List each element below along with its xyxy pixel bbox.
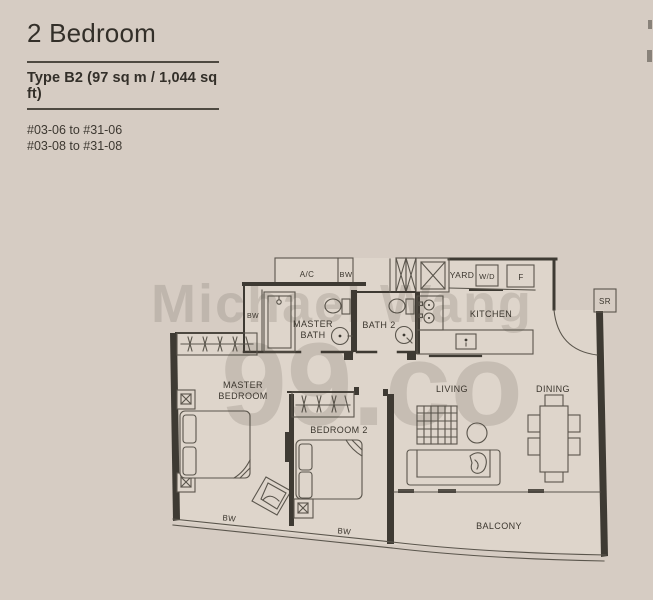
sofa: [407, 450, 500, 485]
room-label-dining: DINING: [536, 384, 570, 394]
room-label-bw-bay-1: BW: [222, 513, 237, 523]
floor-plan: A/CBWYARDW/DFSRKITCHENBATH 2MASTERBATHBW…: [0, 0, 653, 600]
room-label-sr: SR: [599, 297, 611, 306]
edge-artifact: [647, 20, 652, 62]
room-label-balcony: BALCONY: [476, 521, 522, 531]
watermark-line2: 99.co: [221, 319, 523, 451]
room-label-bw-bay-2: BW: [337, 526, 352, 536]
